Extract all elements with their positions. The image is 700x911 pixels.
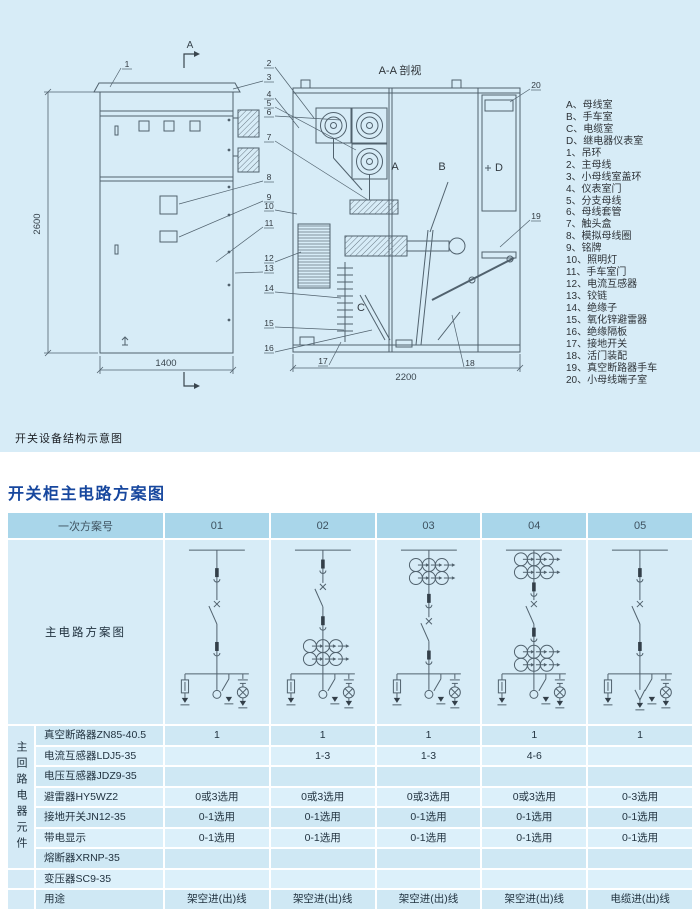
row-label: 用途 <box>36 890 163 909</box>
dim-width-label: 1400 <box>155 358 176 369</box>
value-cell: 0或3选用 <box>482 788 586 807</box>
value-cell <box>588 767 692 786</box>
legend-item: 10、照明灯 <box>566 255 657 267</box>
legend-item: C、电缆室 <box>566 124 657 136</box>
callout-3: 3 <box>267 72 272 82</box>
callout-10: 10 <box>264 201 274 211</box>
value-cell: 0-1选用 <box>271 829 375 848</box>
legend-item: D、继电器仪表室 <box>566 136 657 148</box>
row-label: 真空断路器ZN85-40.5 <box>36 726 163 745</box>
callout-2: 2 <box>267 58 272 68</box>
value-cell: 0或3选用 <box>271 788 375 807</box>
callout-1: 1 <box>125 59 130 69</box>
row-label: 接地开关JN12-35 <box>36 808 163 827</box>
callout-11: 11 <box>265 218 274 228</box>
value-cell <box>165 747 269 766</box>
row-label: 熔断器XRNP-35 <box>36 849 163 868</box>
legend-item: B、手车室 <box>566 112 657 124</box>
circuit-diagram-05 <box>588 540 692 724</box>
value-cell: 0-1选用 <box>271 808 375 827</box>
legend-item: 4、仪表室门 <box>566 184 657 196</box>
value-cell: 0-1选用 <box>482 829 586 848</box>
diagram-row-label: 主电路方案图 <box>8 540 163 724</box>
value-cell <box>588 870 692 889</box>
catalog-page: 2600 1400 A <box>0 0 700 911</box>
value-cell: 0-1选用 <box>377 808 481 827</box>
value-cell: 1 <box>588 726 692 745</box>
table-header-scheme-04: 04 <box>482 513 586 538</box>
legend-item: 17、接地开关 <box>566 339 657 351</box>
section-view-title: A-A 剖视 <box>379 63 422 77</box>
legend-item: 7、触头盒 <box>566 219 657 231</box>
circuit-diagram-01 <box>165 540 269 724</box>
drawing-caption: 开关设备结构示意图 <box>15 430 123 446</box>
value-cell: 0-3选用 <box>588 788 692 807</box>
value-cell: 0-1选用 <box>165 808 269 827</box>
value-cell: 架空进(出)线 <box>482 890 586 909</box>
value-cell <box>165 849 269 868</box>
value-cell: 0-1选用 <box>588 829 692 848</box>
value-cell: 4-6 <box>482 747 586 766</box>
value-cell <box>377 870 481 889</box>
legend-item: 3、小母线室盖环 <box>566 172 657 184</box>
legend-item: 6、母线套管 <box>566 207 657 219</box>
legend-item: 13、铰链 <box>566 291 657 303</box>
value-cell: 架空进(出)线 <box>377 890 481 909</box>
structure-drawing-section: 2600 1400 A <box>0 0 700 452</box>
legend-item: 9、铭牌 <box>566 243 657 255</box>
value-cell: 架空进(出)线 <box>271 890 375 909</box>
row-label: 变压器SC9-35 <box>36 870 163 889</box>
legend-item: 11、手车室门 <box>566 267 657 279</box>
value-cell <box>482 767 586 786</box>
value-cell: 1 <box>482 726 586 745</box>
front-view-dimensions <box>44 89 236 374</box>
value-cell: 电缆进(出)线 <box>588 890 692 909</box>
value-cell: 0-1选用 <box>165 829 269 848</box>
callout-19: 19 <box>531 211 541 221</box>
cut-mark-label: A <box>187 40 194 51</box>
value-cell: 架空进(出)线 <box>165 890 269 909</box>
value-cell: 1-3 <box>377 747 481 766</box>
value-cell <box>588 849 692 868</box>
parts-legend: A、母线室B、手车室C、电缆室D、继电器仪表室1、吊环2、主母线3、小母线室盖环… <box>566 100 657 387</box>
value-cell <box>271 849 375 868</box>
table-header-scheme-05: 05 <box>588 513 692 538</box>
value-cell: 1 <box>165 726 269 745</box>
row-label: 电压互感器JDZ9-35 <box>36 767 163 786</box>
value-cell <box>377 849 481 868</box>
callout-18: 18 <box>465 358 475 368</box>
table-header-scheme-01: 01 <box>165 513 269 538</box>
legend-item: 14、绝缘子 <box>566 303 657 315</box>
section-title: 开关柜主电路方案图 <box>8 480 166 504</box>
compartment-label-C: C <box>357 302 365 314</box>
callout-12: 12 <box>264 253 274 263</box>
callout-7: 7 <box>267 132 272 142</box>
legend-item: 1、吊环 <box>566 148 657 160</box>
value-cell <box>165 870 269 889</box>
hinge-dots <box>228 119 231 322</box>
table-header-scheme-03: 03 <box>377 513 481 538</box>
callout-6: 6 <box>267 107 272 117</box>
legend-item: 8、模拟母线圈 <box>566 231 657 243</box>
drawing-annotations: 1234567891011121314151617181920ABCD <box>110 58 541 368</box>
dim-height-label: 2600 <box>32 213 43 234</box>
compartment-label-A: A <box>391 161 399 173</box>
group-spacer-cell <box>8 890 34 909</box>
compartment-label-B: B <box>438 161 445 173</box>
group-label: 主回路电器元件 <box>13 741 29 853</box>
legend-item: A、母线室 <box>566 100 657 112</box>
callout-13: 13 <box>264 263 274 273</box>
value-cell <box>377 767 481 786</box>
value-cell <box>588 747 692 766</box>
legend-item: 15、氧化锌避雷器 <box>566 315 657 327</box>
main-circuit-scheme-table: 一次方案号0102030405主电路方案图主回路电器元件真空断路器ZN85-40… <box>8 513 692 909</box>
value-cell: 0-1选用 <box>482 808 586 827</box>
section-cut-marks <box>184 51 200 389</box>
value-cell: 0或3选用 <box>165 788 269 807</box>
callout-15: 15 <box>264 318 274 328</box>
value-cell <box>482 870 586 889</box>
value-cell <box>165 767 269 786</box>
row-label: 带电显示 <box>36 829 163 848</box>
circuit-diagram-02 <box>271 540 375 724</box>
callout-20: 20 <box>531 80 541 90</box>
value-cell: 1 <box>271 726 375 745</box>
row-label: 避雷器HY5WZ2 <box>36 788 163 807</box>
callout-17: 17 <box>318 356 328 366</box>
group-spacer-cell <box>8 870 34 889</box>
legend-item: 16、绝缘隔板 <box>566 327 657 339</box>
value-cell <box>482 849 586 868</box>
value-cell: 1-3 <box>271 747 375 766</box>
circuit-diagram-svg-02 <box>271 540 375 724</box>
value-cell <box>271 767 375 786</box>
circuit-diagram-svg-05 <box>588 540 692 724</box>
legend-item: 20、小母线端子室 <box>566 375 657 387</box>
table-header-scheme-02: 02 <box>271 513 375 538</box>
circuit-diagram-svg-01 <box>165 540 269 724</box>
circuit-diagram-svg-04 <box>482 540 586 724</box>
legend-item: 19、真空断路器手车 <box>566 363 657 375</box>
legend-item: 5、分支母线 <box>566 196 657 208</box>
value-cell: 1 <box>377 726 481 745</box>
value-cell: 0-1选用 <box>588 808 692 827</box>
value-cell: 0-1选用 <box>377 829 481 848</box>
section-view <box>293 80 520 352</box>
row-label: 电流互感器LDJ5-35 <box>36 747 163 766</box>
group-label-cell: 主回路电器元件 <box>8 726 34 868</box>
callout-14: 14 <box>264 283 274 293</box>
front-view <box>94 83 259 353</box>
value-cell: 0或3选用 <box>377 788 481 807</box>
circuit-diagram-03 <box>377 540 481 724</box>
dim-depth-label: 2200 <box>395 372 416 383</box>
circuit-diagram-svg-03 <box>377 540 481 724</box>
callout-8: 8 <box>267 172 272 182</box>
legend-item: 2、主母线 <box>566 160 657 172</box>
legend-item: 12、电流互感器 <box>566 279 657 291</box>
compartment-label-D: D <box>495 162 503 174</box>
legend-item: 18、活门装配 <box>566 351 657 363</box>
callout-16: 16 <box>264 343 274 353</box>
circuit-diagram-04 <box>482 540 586 724</box>
table-header-first: 一次方案号 <box>8 513 163 538</box>
value-cell <box>271 870 375 889</box>
